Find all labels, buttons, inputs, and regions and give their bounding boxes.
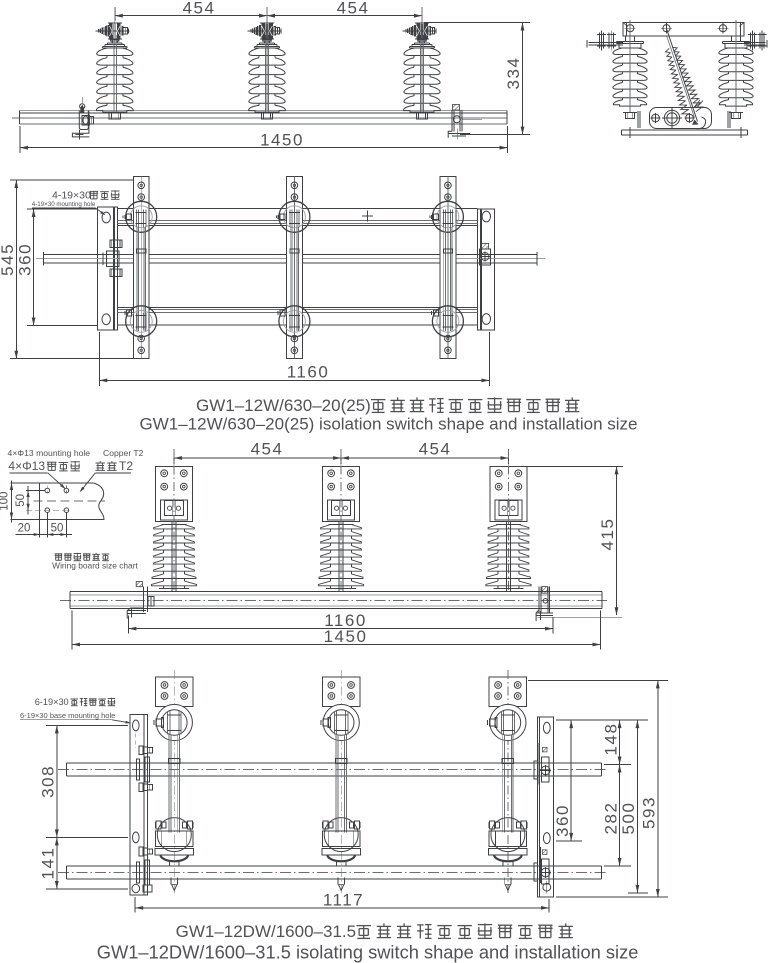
svg-text:141: 141 <box>39 847 58 880</box>
svg-text:GW1–12W/630–20(25): GW1–12W/630–20(25) <box>196 396 371 415</box>
svg-text:50: 50 <box>15 494 27 507</box>
svg-text:454: 454 <box>419 440 452 459</box>
svg-text:454: 454 <box>183 0 216 18</box>
svg-text:4×Φ13: 4×Φ13 <box>8 459 45 473</box>
svg-text:T2: T2 <box>119 459 133 473</box>
svg-text:50: 50 <box>51 523 64 535</box>
svg-text:6-19×30: 6-19×30 <box>35 697 69 707</box>
svg-text:GW1–12DW/1600–31.5 isolating s: GW1–12DW/1600–31.5 isolating switch shap… <box>97 942 639 963</box>
svg-text:GW1–12W/630–20(25) isolation s: GW1–12W/630–20(25) isolation switch shap… <box>140 415 638 434</box>
svg-text:1450: 1450 <box>260 130 304 149</box>
svg-text:308: 308 <box>39 765 58 798</box>
svg-text:360: 360 <box>15 243 34 276</box>
svg-text:500: 500 <box>619 802 638 835</box>
svg-text:334: 334 <box>504 57 523 90</box>
svg-text:GW1–12DW/1600–31.5: GW1–12DW/1600–31.5 <box>176 922 357 941</box>
svg-text:360: 360 <box>553 804 572 837</box>
svg-text:4-19×30: 4-19×30 <box>52 190 91 202</box>
svg-text:Copper T2: Copper T2 <box>103 448 144 458</box>
svg-text:454: 454 <box>337 0 370 18</box>
svg-text:Wiring board size chart: Wiring board size chart <box>52 561 138 571</box>
svg-text:100: 100 <box>0 492 11 511</box>
svg-text:4-19×30 mounting hole: 4-19×30 mounting hole <box>32 201 96 208</box>
svg-text:1117: 1117 <box>323 890 364 909</box>
svg-text:20: 20 <box>18 523 31 535</box>
svg-text:4×Φ13 mounting hole: 4×Φ13 mounting hole <box>8 448 91 458</box>
svg-text:6-19×30 base mounting hole: 6-19×30 base mounting hole <box>20 711 115 720</box>
svg-text:282: 282 <box>601 802 620 835</box>
svg-text:1450: 1450 <box>324 627 368 646</box>
svg-text:454: 454 <box>251 440 284 459</box>
svg-text:1160: 1160 <box>287 363 330 382</box>
svg-text:415: 415 <box>598 518 617 551</box>
svg-text:593: 593 <box>640 796 659 829</box>
svg-text:148: 148 <box>601 723 620 756</box>
